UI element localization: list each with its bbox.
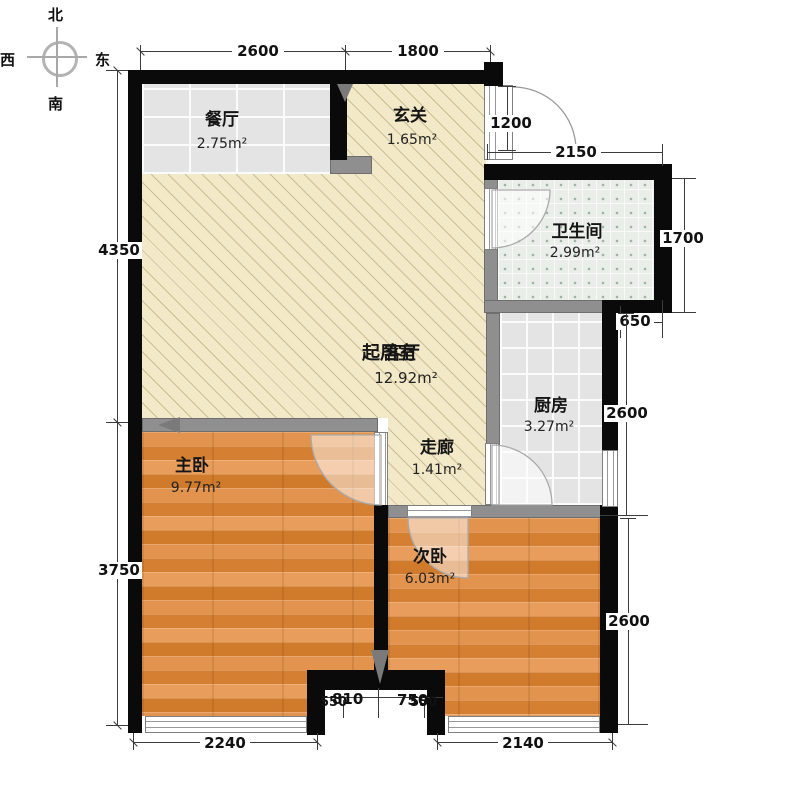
dim-line-left: [117, 70, 118, 726]
top-wall: [128, 70, 484, 84]
tick: [498, 150, 516, 151]
dim-notch-right-b: 550: [410, 694, 437, 711]
compass-north: 北: [48, 4, 63, 25]
dim-right-lower: 2600: [606, 613, 652, 630]
tick: [487, 144, 488, 160]
dim-jog: 650: [616, 313, 654, 330]
tick: [378, 688, 379, 718]
compass-west: 西: [0, 49, 15, 70]
bathroom-top-wall: [484, 164, 672, 180]
floorplan: 北 西 东 南 餐: [0, 0, 800, 800]
compass-east: 东: [95, 49, 110, 70]
bathroom-label: 卫生间: [537, 222, 617, 242]
dim-entry-door: 1200: [488, 115, 534, 132]
entry-wall-stub: [484, 62, 503, 86]
master-label: 主卧: [160, 456, 224, 476]
tick: [345, 45, 346, 70]
dining-area: 2.75m²: [182, 136, 262, 152]
dim-top-left: 2600: [232, 43, 284, 60]
bathroom-area: 2.99m²: [535, 245, 615, 261]
tick: [672, 178, 696, 179]
second-label: 次卧: [398, 547, 462, 567]
dim-bath-top: 2150: [551, 144, 601, 161]
kitchen-label: 厨房: [519, 396, 583, 416]
second-bedroom-window: [448, 716, 600, 733]
compass-south: 南: [48, 93, 63, 114]
dining-label: 餐厅: [190, 110, 254, 130]
bathroom-door-leaf: [484, 188, 498, 250]
living-area: 12.92m²: [366, 370, 446, 386]
kitchen-door-leaf: [485, 443, 499, 505]
corridor-label: 走廊: [405, 438, 469, 458]
dim-left-lower: 3750: [96, 562, 142, 579]
dim-bath-right: 1700: [660, 230, 706, 247]
master-arrow-icon: [158, 417, 180, 433]
corridor-area: 1.41m²: [397, 462, 477, 478]
master-area: 9.77m²: [156, 480, 236, 496]
entry-arrow-icon: [337, 84, 353, 102]
tick: [672, 312, 696, 313]
second-area: 6.03m²: [390, 571, 470, 587]
tick: [620, 518, 636, 519]
living-label-b: 客厅: [384, 344, 420, 364]
kitchen-right-wall: [602, 313, 618, 452]
compass-ring-icon: [42, 41, 78, 77]
second-door-frame: [407, 505, 472, 518]
kitchen-area: 3.27m²: [509, 419, 589, 435]
bedroom-divider-wall: [374, 505, 388, 670]
left-wall: [128, 70, 142, 733]
dim-top-right: 1800: [392, 43, 444, 60]
tick: [662, 144, 663, 166]
tick: [662, 300, 663, 338]
notch-arrow-icon: [371, 650, 389, 684]
dim-right-upper: 2600: [604, 405, 650, 422]
dim-notch-left-b: 810: [332, 691, 363, 708]
dim-left-upper: 4350: [96, 242, 142, 259]
kitchen-window: [602, 450, 618, 507]
tick: [140, 45, 141, 70]
compass-axis-horizontal: [27, 56, 87, 58]
dim-bottom-right: 2140: [498, 735, 548, 752]
tick: [498, 86, 516, 87]
tick: [600, 515, 648, 516]
tick: [618, 313, 634, 314]
master-door-leaf: [374, 432, 388, 506]
tick: [618, 724, 648, 725]
master-bedroom-window: [145, 716, 307, 733]
entry-area: 1.65m²: [372, 132, 452, 148]
dim-bottom-left: 2240: [200, 735, 250, 752]
entry-label: 玄关: [378, 106, 442, 126]
